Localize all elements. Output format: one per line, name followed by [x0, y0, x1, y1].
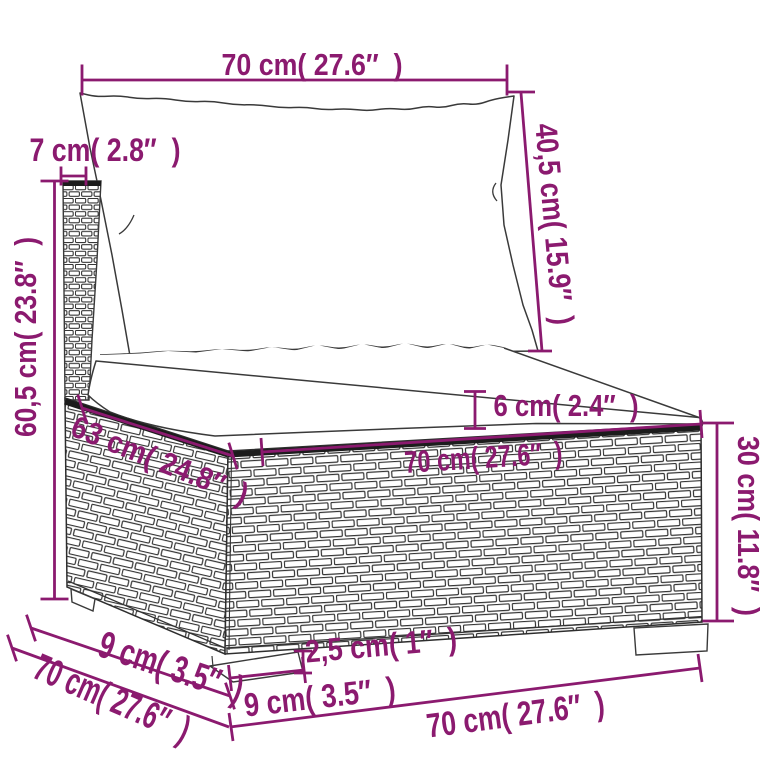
- svg-text:7 cm( 2.8″ ): 7 cm( 2.8″ ): [30, 132, 181, 168]
- svg-text:30 cm( 11.8″ ): 30 cm( 11.8″ ): [731, 436, 766, 616]
- svg-text:70 cm( 27.6″ ): 70 cm( 27.6″ ): [222, 47, 403, 82]
- svg-text:60,5 cm( 23.8″ ): 60,5 cm( 23.8″ ): [8, 237, 43, 437]
- svg-text:6 cm( 2.4″ ): 6 cm( 2.4″ ): [494, 388, 639, 423]
